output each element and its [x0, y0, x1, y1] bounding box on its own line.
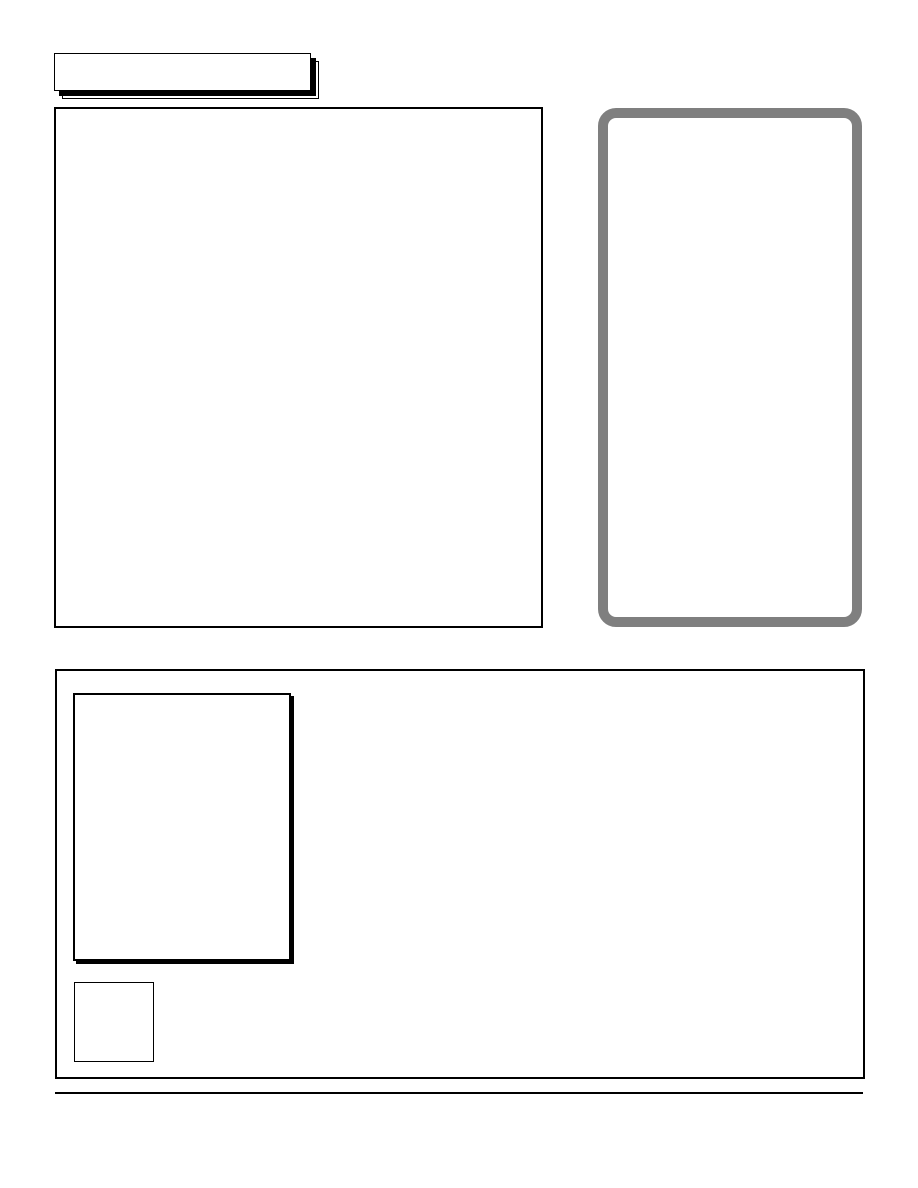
photo-placeholder-frame	[73, 693, 291, 961]
sidebar-rounded-frame	[598, 108, 862, 627]
title-banner-box	[54, 53, 311, 91]
lower-section-frame	[55, 669, 865, 1079]
title-banner	[54, 53, 311, 91]
document-page	[0, 0, 918, 1188]
main-article-frame	[54, 107, 543, 628]
footer-rule	[55, 1092, 863, 1094]
small-square-frame	[74, 982, 154, 1062]
